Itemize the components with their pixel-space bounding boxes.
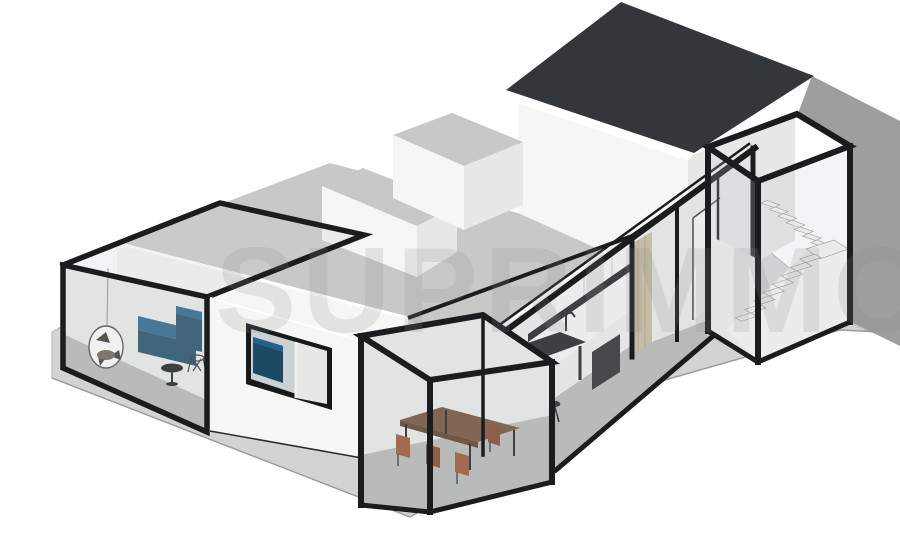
render-canvas: SUPRIMMO bbox=[0, 0, 900, 540]
dining-glass-right bbox=[430, 362, 552, 512]
watermark: SUPRIMMO bbox=[215, 222, 900, 358]
